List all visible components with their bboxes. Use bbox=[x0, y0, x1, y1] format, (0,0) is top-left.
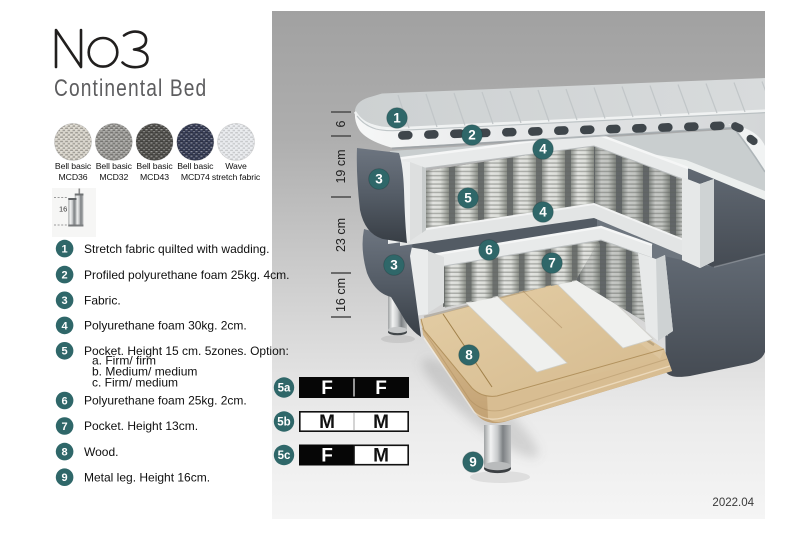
svg-text:2022.04: 2022.04 bbox=[712, 497, 754, 509]
svg-text:MCD74: MCD74 bbox=[181, 172, 210, 182]
svg-text:M: M bbox=[319, 412, 335, 433]
svg-text:MCD43: MCD43 bbox=[140, 172, 169, 182]
svg-text:16: 16 bbox=[59, 205, 67, 214]
svg-text:2: 2 bbox=[62, 270, 68, 282]
svg-text:9: 9 bbox=[62, 472, 68, 484]
svg-text:F: F bbox=[375, 378, 387, 399]
svg-text:Fabric.: Fabric. bbox=[84, 294, 121, 308]
svg-text:1: 1 bbox=[62, 244, 68, 256]
svg-text:4: 4 bbox=[539, 205, 547, 220]
svg-text:M: M bbox=[373, 446, 389, 467]
svg-text:1: 1 bbox=[393, 111, 401, 126]
svg-text:5b: 5b bbox=[277, 417, 290, 429]
svg-text:3: 3 bbox=[375, 172, 383, 187]
svg-text:Wave: Wave bbox=[225, 161, 247, 171]
svg-text:Bell basic: Bell basic bbox=[136, 161, 173, 171]
svg-text:stretch fabric: stretch fabric bbox=[212, 172, 261, 182]
svg-text:5a: 5a bbox=[278, 383, 291, 395]
svg-text:23 cm: 23 cm bbox=[334, 218, 348, 252]
svg-text:Polyurethane foam 30kg. 2cm.: Polyurethane foam 30kg. 2cm. bbox=[84, 319, 247, 333]
svg-text:6: 6 bbox=[334, 120, 348, 127]
svg-text:Pocket. Height 13cm.: Pocket. Height 13cm. bbox=[84, 419, 198, 433]
svg-text:5: 5 bbox=[62, 346, 68, 358]
svg-text:Bell basic: Bell basic bbox=[96, 161, 133, 171]
svg-text:9: 9 bbox=[469, 455, 477, 470]
svg-text:3: 3 bbox=[390, 258, 398, 273]
svg-text:19 cm: 19 cm bbox=[334, 149, 348, 183]
svg-text:Profiled polyurethane foam 25k: Profiled polyurethane foam 25kg. 4cm. bbox=[84, 268, 289, 282]
svg-text:7: 7 bbox=[548, 256, 556, 271]
svg-text:3: 3 bbox=[62, 295, 68, 307]
svg-text:8: 8 bbox=[62, 447, 68, 459]
svg-text:7: 7 bbox=[62, 421, 68, 433]
svg-text:8: 8 bbox=[465, 348, 473, 363]
svg-text:MCD32: MCD32 bbox=[99, 172, 128, 182]
svg-text:4: 4 bbox=[539, 142, 547, 157]
svg-text:Metal leg. Height 16cm.: Metal leg. Height 16cm. bbox=[84, 470, 210, 484]
svg-text:5: 5 bbox=[464, 191, 472, 206]
svg-text:Wood.: Wood. bbox=[84, 445, 118, 459]
svg-text:6: 6 bbox=[62, 395, 68, 407]
svg-text:M: M bbox=[373, 412, 389, 433]
svg-text:MCD36: MCD36 bbox=[59, 172, 88, 182]
svg-text:16 cm: 16 cm bbox=[334, 278, 348, 312]
svg-text:Polyurethane foam 25kg. 2cm.: Polyurethane foam 25kg. 2cm. bbox=[84, 394, 247, 408]
svg-text:F: F bbox=[321, 446, 333, 467]
svg-text:6: 6 bbox=[485, 243, 493, 258]
svg-text:Stretch fabric quilted with wa: Stretch fabric quilted with wadding. bbox=[84, 242, 269, 256]
svg-text:4: 4 bbox=[62, 320, 69, 332]
svg-text:2: 2 bbox=[468, 128, 476, 143]
svg-text:F: F bbox=[321, 378, 333, 399]
svg-text:5c: 5c bbox=[278, 450, 291, 462]
svg-text:Bell basic: Bell basic bbox=[177, 161, 214, 171]
svg-text:Bell basic: Bell basic bbox=[55, 161, 92, 171]
svg-text:c. Firm/ medium: c. Firm/ medium bbox=[92, 375, 178, 389]
svg-text:Continental Bed: Continental Bed bbox=[54, 74, 207, 102]
